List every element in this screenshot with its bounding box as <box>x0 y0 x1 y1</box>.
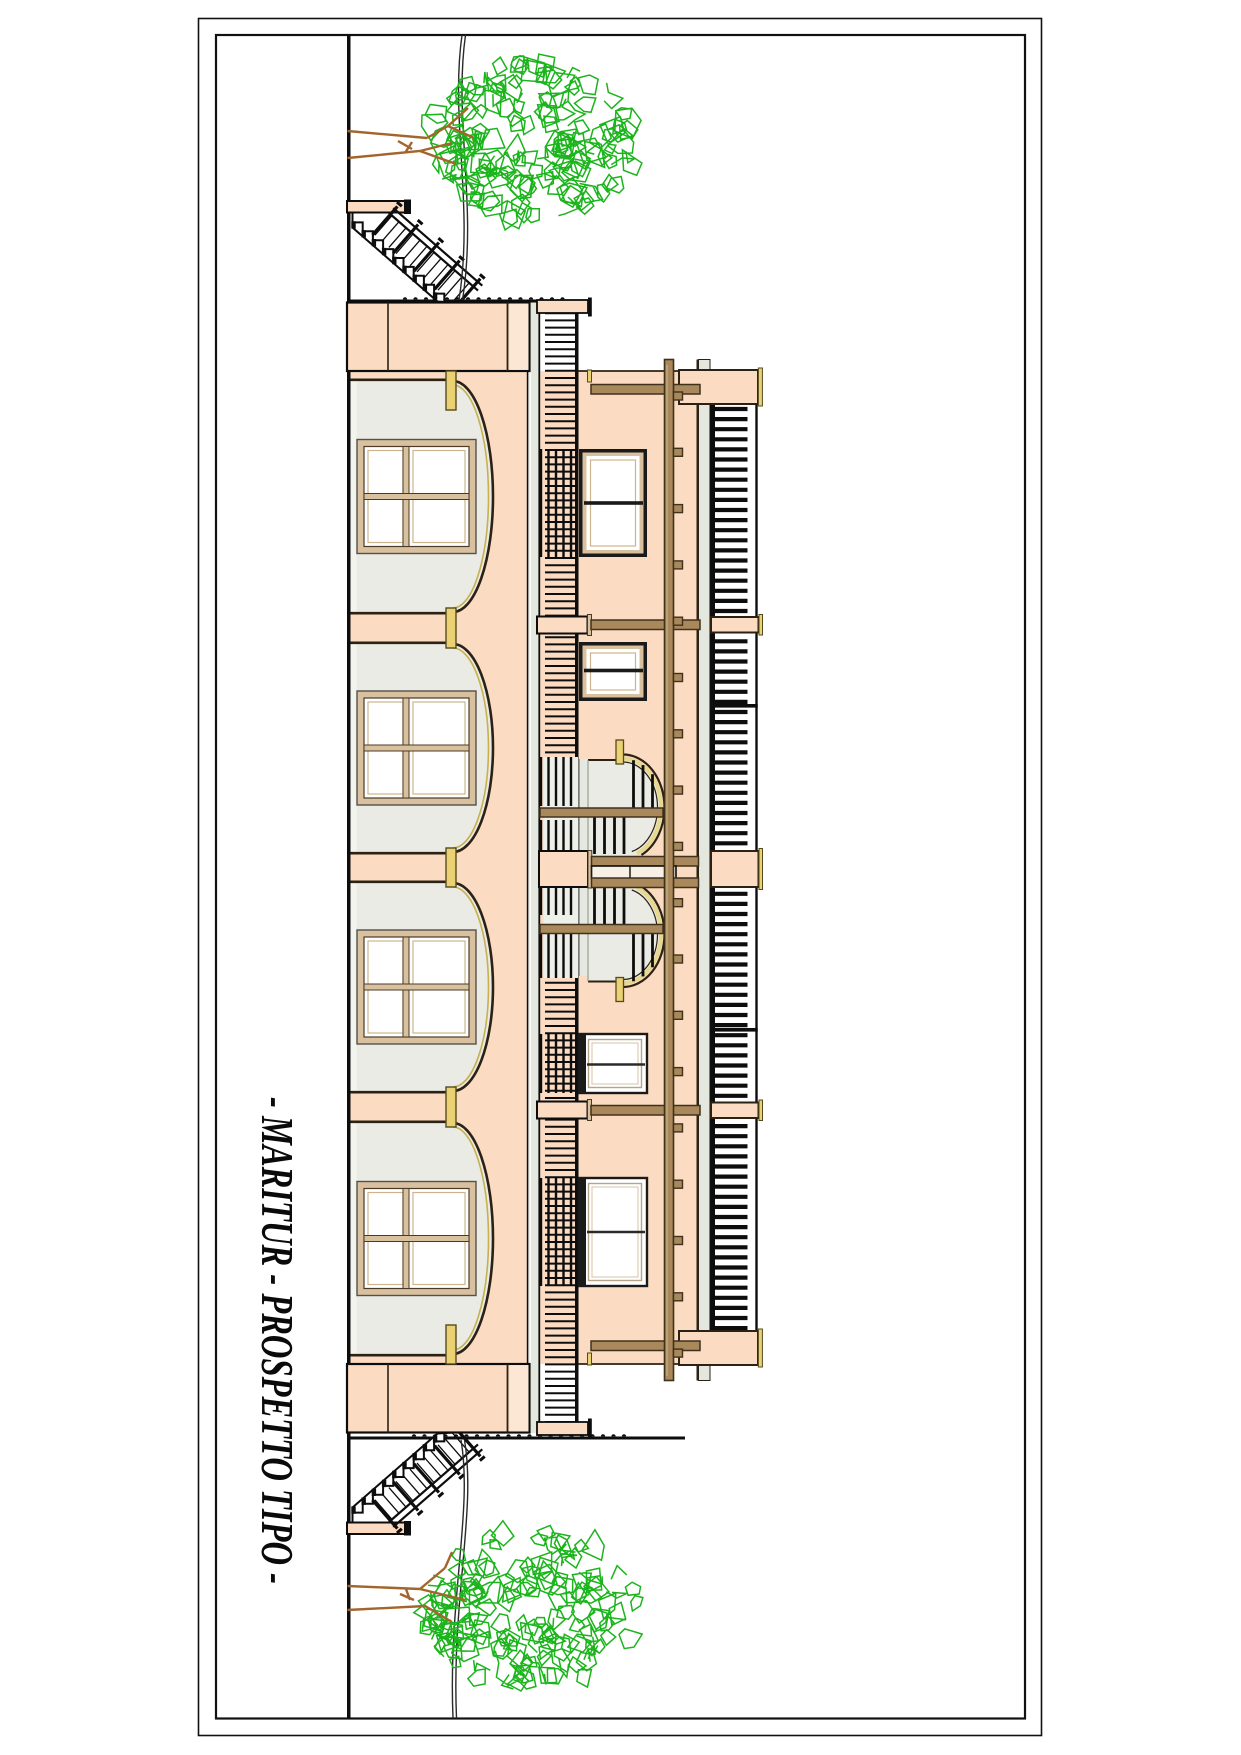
svg-text:- MARITUR - PROSPETTO TIPO -: - MARITUR - PROSPETTO TIPO - <box>252 1097 303 1584</box>
